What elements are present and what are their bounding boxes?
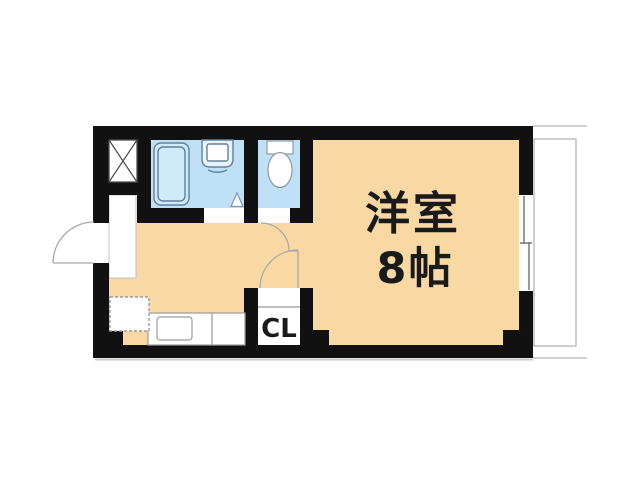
window [520, 196, 532, 290]
kitchen-counter [148, 313, 245, 345]
washer-pan [110, 297, 149, 331]
shaft-box [109, 140, 137, 182]
entrance-area [109, 195, 136, 278]
room-name-label: 洋室 [365, 187, 461, 240]
bathtub [154, 143, 189, 205]
floor-plan: 洋室 8帖 CL [0, 0, 640, 480]
toilet-bowl [268, 153, 292, 188]
toilet [267, 141, 293, 188]
kitchen-sink [157, 317, 192, 340]
closet-label: CL [261, 314, 297, 344]
floor-plan-page: 洋室 8帖 CL [0, 0, 640, 480]
balcony-outline [534, 139, 576, 346]
room-size-label: 8帖 [377, 244, 454, 294]
entrance-door [53, 222, 94, 263]
balcony [533, 126, 587, 358]
main-room-floor [313, 140, 519, 345]
entrance-door-arc [53, 222, 94, 263]
